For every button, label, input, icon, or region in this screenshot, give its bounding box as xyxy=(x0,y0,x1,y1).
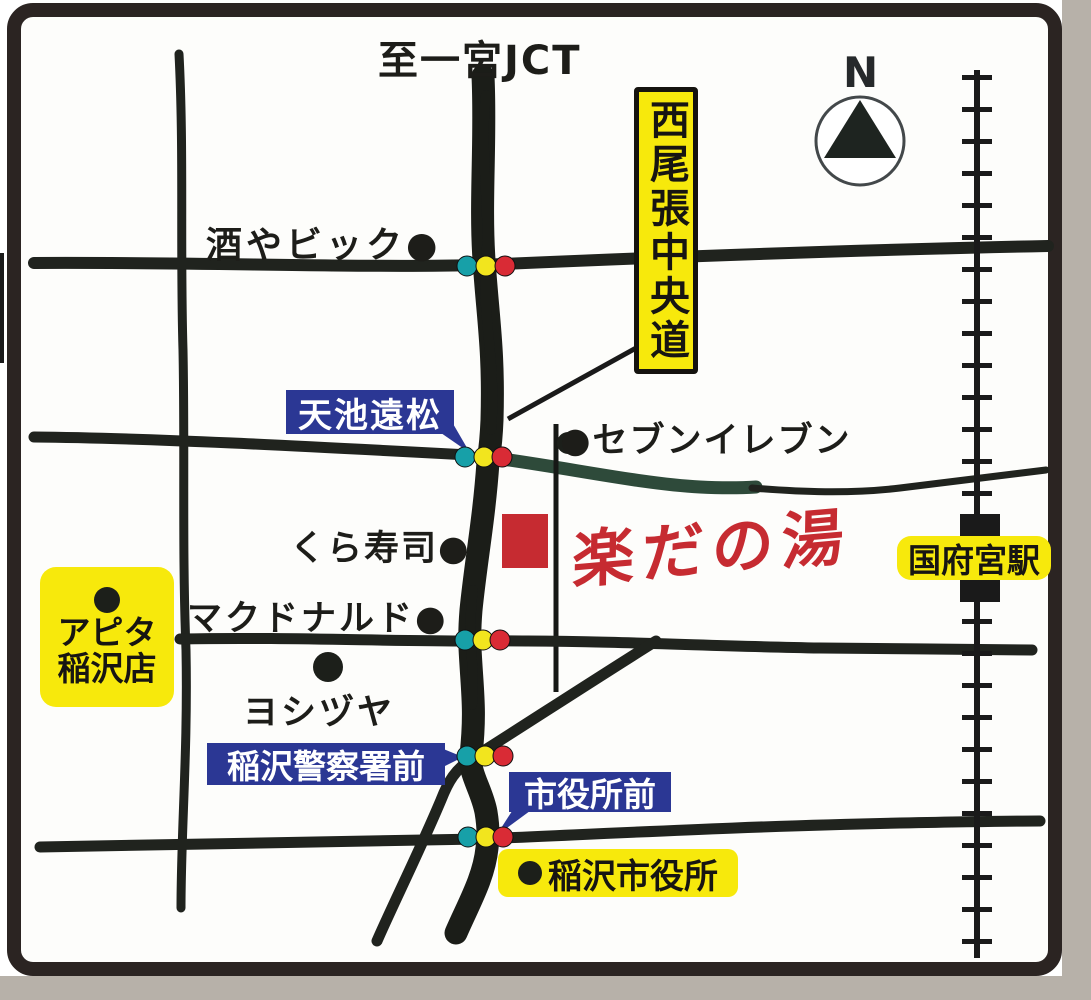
north-compass xyxy=(816,97,904,185)
road-horizontal-amaike-east xyxy=(752,470,1046,492)
road-left-vertical xyxy=(179,54,186,908)
signal-red-light xyxy=(493,827,513,847)
expressway-callout-line xyxy=(508,348,636,419)
signal-red-light xyxy=(495,256,515,276)
sake-bic-label: 酒やビック● xyxy=(206,216,441,268)
apita-sign-line2: 稲沢店 xyxy=(58,651,157,687)
signal-teal-light xyxy=(455,630,475,650)
signal-yellow-light xyxy=(474,447,494,467)
inazawa-city-hall-dot xyxy=(518,861,542,885)
expressway-sign-text: 西尾張中央道 xyxy=(637,99,695,363)
shiyakusho-mae-intersection-sign: 市役所前 xyxy=(509,772,671,812)
inazawa-city-hall-sign: 稲沢市役所 xyxy=(498,849,738,897)
apita-dot xyxy=(94,587,120,613)
signal-teal-light xyxy=(458,827,478,847)
signal-police xyxy=(457,746,513,766)
scan-artifact-left xyxy=(0,253,4,363)
signal-red-light xyxy=(493,746,513,766)
inazawa-city-hall-text: 稲沢市役所 xyxy=(548,849,718,898)
signal-teal-light xyxy=(455,447,475,467)
inazawa-police-intersection-sign: 稲沢警察署前 xyxy=(207,743,445,785)
signal-teal-light xyxy=(457,746,477,766)
scan-edge-bottom xyxy=(0,976,1091,1000)
scan-edge-right xyxy=(1062,0,1091,1000)
signal-mcdonalds xyxy=(455,630,510,650)
signal-sake-bic xyxy=(457,256,515,276)
kura-sushi-label: くら寿司● xyxy=(290,520,471,571)
destination-building-marker xyxy=(502,514,548,568)
mcdonalds-label: マクドナルド● xyxy=(187,590,449,641)
konomiya-station-sign: 国府宮駅 xyxy=(897,536,1051,580)
apita-sign-line1: アピタ xyxy=(58,615,157,651)
seven-eleven-label: ●セブンイレブン xyxy=(560,412,852,463)
road-horizontal-amaike-west xyxy=(34,437,470,455)
destination-ichinomiya-jct-label: 至一宮JCT xyxy=(378,28,582,86)
amaike-tomatsu-intersection-sign: 天池遠松 xyxy=(286,390,454,434)
scanned-access-map: 至一宮JCT N 西尾張中央道 酒やビック● 天池遠松 ●セブンイレブン くら寿… xyxy=(0,0,1091,1000)
signal-yellow-light xyxy=(475,746,495,766)
expressway-sign-nishi-owari-chuo-do: 西尾張中央道 xyxy=(634,87,698,374)
signal-teal-light xyxy=(457,256,477,276)
signal-yellow-light xyxy=(476,256,496,276)
signal-amaike-tomatsu xyxy=(455,447,512,467)
yoshizuya-label: ヨシヅヤ xyxy=(243,684,395,735)
apita-inazawa-sign: アピタ 稲沢店 xyxy=(40,567,174,707)
road-horizontal-cityhall xyxy=(40,821,1040,847)
signal-red-light xyxy=(490,630,510,650)
signal-red-light xyxy=(492,447,512,467)
north-letter-label: N xyxy=(843,48,878,97)
yoshizuya-dot xyxy=(313,652,343,682)
signal-shiyakusho xyxy=(458,827,513,847)
